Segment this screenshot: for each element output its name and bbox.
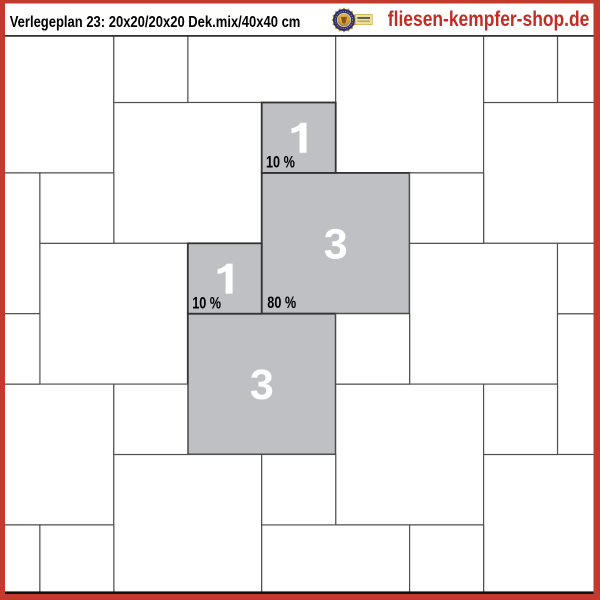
svg-text:Verlegeplan 23: 20x20/20x20 De: Verlegeplan 23: 20x20/20x20 Dek.mix/40x4…	[10, 14, 301, 32]
svg-text:3: 3	[250, 361, 274, 409]
svg-text:fliesen-kempfer-shop.de: fliesen-kempfer-shop.de	[388, 9, 590, 32]
svg-text:10 %: 10 %	[266, 153, 295, 172]
svg-text:10 %: 10 %	[192, 294, 221, 313]
svg-text:3: 3	[324, 220, 348, 268]
svg-text:80 %: 80 %	[267, 293, 296, 312]
